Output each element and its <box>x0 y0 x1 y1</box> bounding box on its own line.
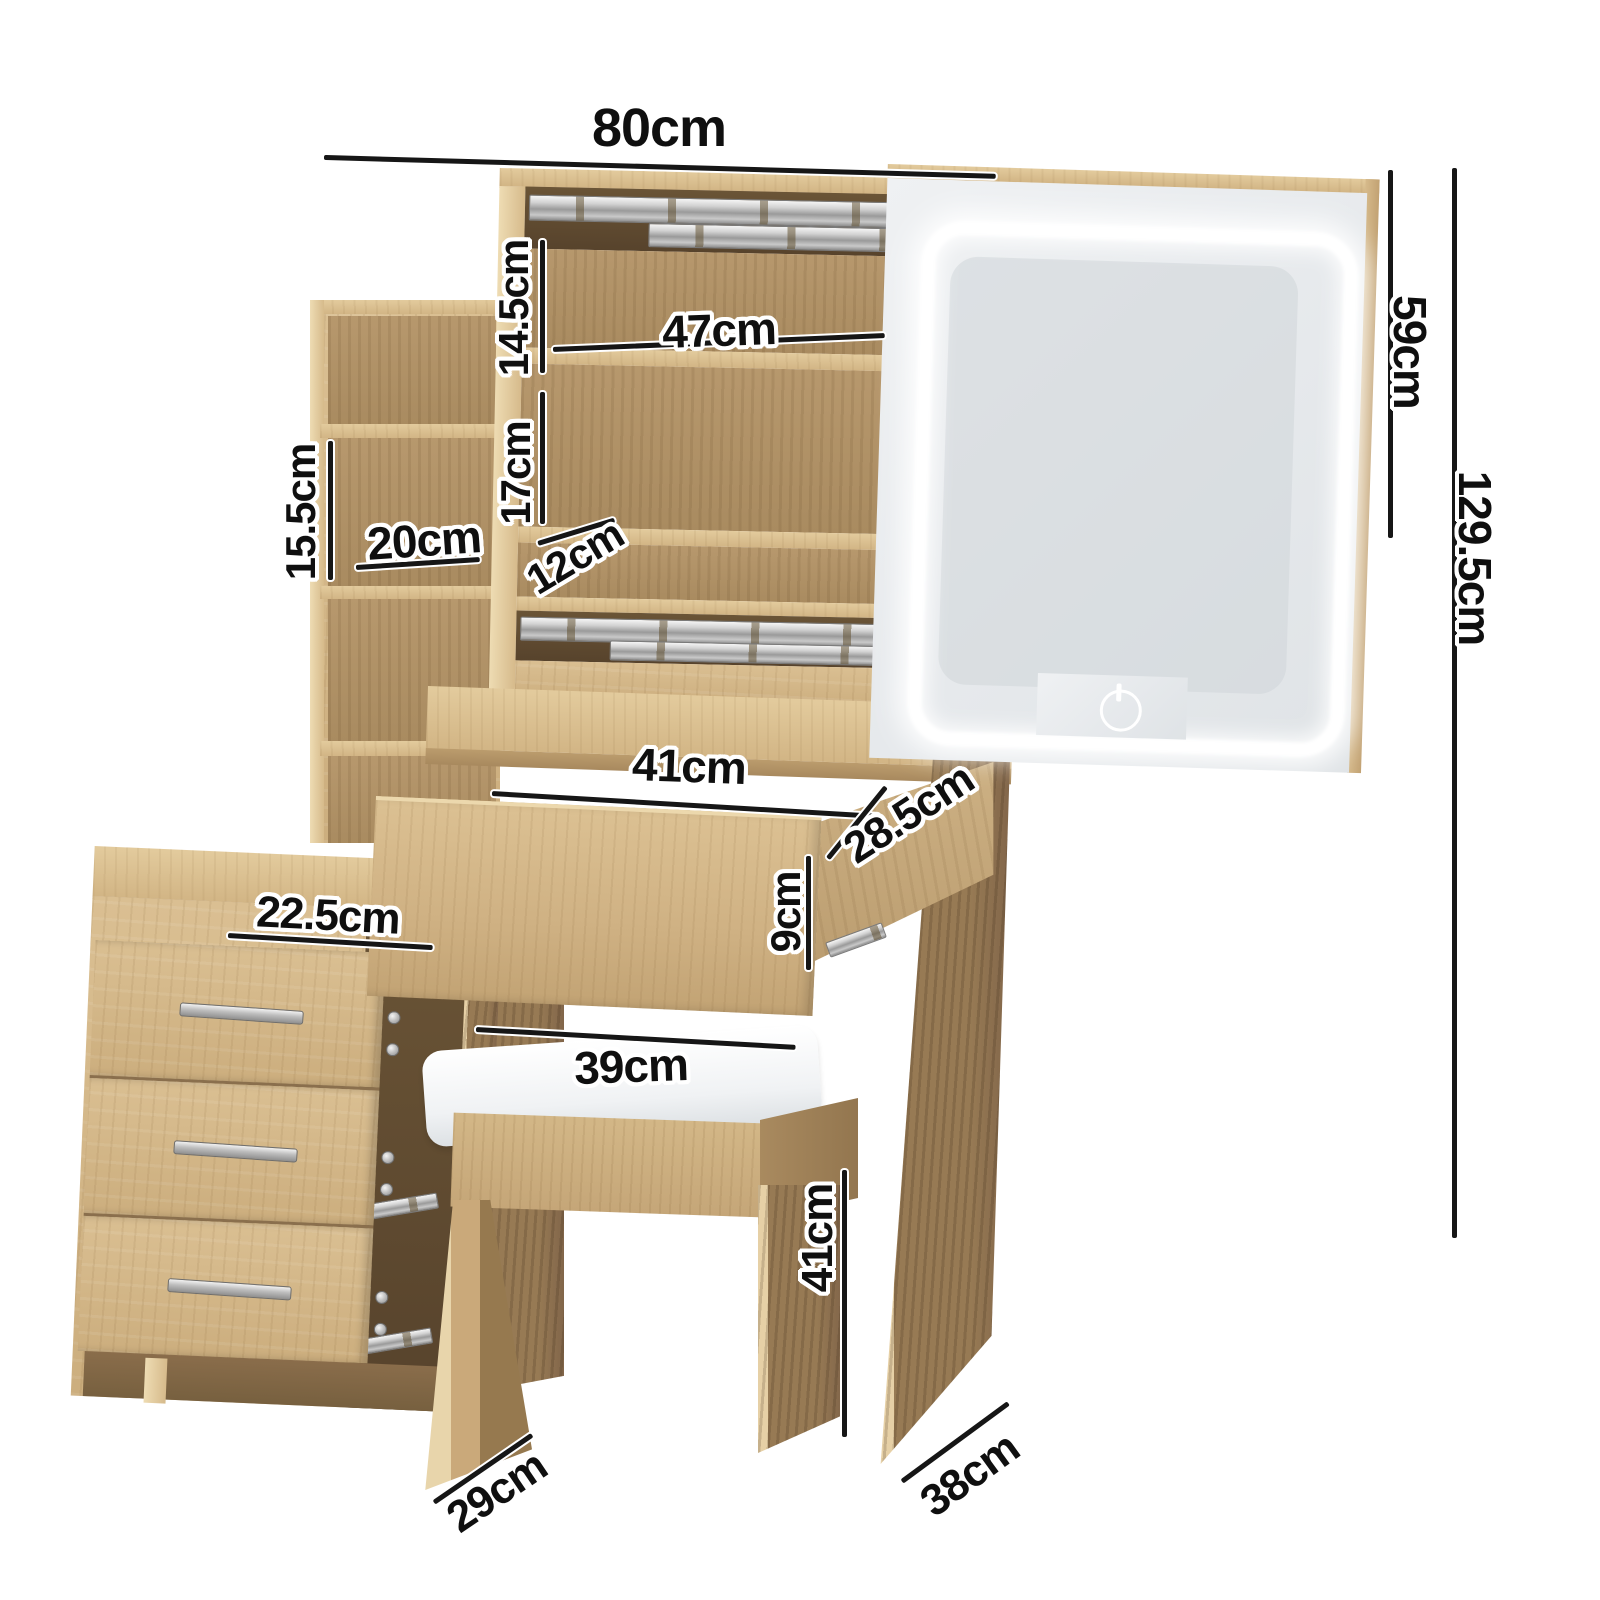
dim-tower-shelf-height-label: 15.5cm <box>277 444 325 580</box>
dim-top-shelf-height-label: 14.5cm <box>490 240 538 376</box>
tower-top <box>310 300 500 314</box>
tower-cell-1 <box>328 316 496 424</box>
dim-side-drawer-width-label: 22.5cm <box>255 887 401 944</box>
dim-total-height-label: 129.5cm <box>1448 471 1502 646</box>
dim-stool-height-label: 41cm <box>793 1184 843 1293</box>
dim-stool-seat-width-label: 39cm <box>573 1037 688 1095</box>
dim-middle-shelf-height-line <box>540 392 545 524</box>
unit-leg <box>144 1358 168 1404</box>
desk-drawer-front <box>367 796 822 1016</box>
led-mirror <box>869 160 1380 775</box>
dim-mirror-height-label: 59cm <box>1383 295 1437 409</box>
stool-apron <box>450 1113 765 1218</box>
dim-top-shelf-height-line <box>540 240 545 373</box>
dim-shelf-inner-width-label: 47cm <box>661 301 776 359</box>
dim-drawer-height-label: 9cm <box>762 871 810 952</box>
dim-total-height-line <box>1452 168 1457 1238</box>
tower-shelf-2 <box>320 586 500 599</box>
dim-middle-shelf-height-label: 17cm <box>492 421 540 524</box>
dim-drawer-width-label: 41cm <box>631 737 746 795</box>
dim-tower-shelf-height-line <box>328 441 333 580</box>
tower-shelf-1 <box>320 424 500 438</box>
dim-tower-width-label: 20cm <box>365 509 482 571</box>
power-icon-bar <box>1116 683 1122 701</box>
dim-table-depth-label: 38cm <box>911 1423 1028 1527</box>
product-dimension-diagram: 80cm 47cm 14.5cm 17cm 12cm 15.5cm 20cm 5… <box>0 0 1600 1600</box>
dim-hutch-width-label: 80cm <box>592 97 726 159</box>
